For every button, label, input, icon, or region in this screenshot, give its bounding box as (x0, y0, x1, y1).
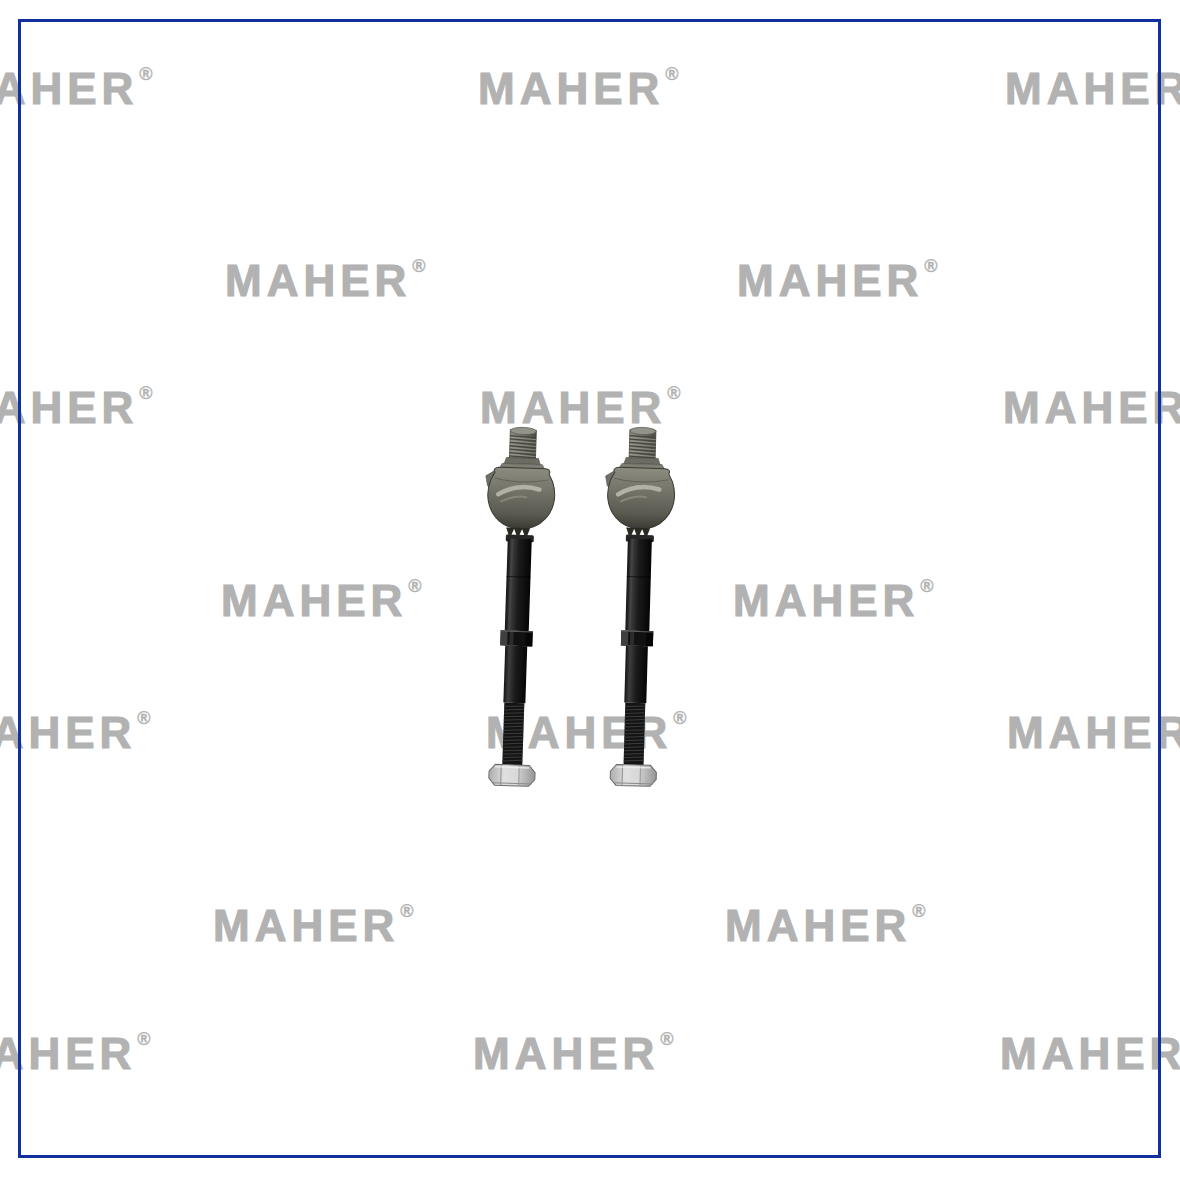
product-image-canvas: MAHER®MAHER®MAHER®MAHER®MAHER®MAHER®MAHE… (0, 0, 1180, 1180)
tie-rod-right (597, 426, 676, 786)
tie-rod-left (476, 426, 557, 787)
product-photo (0, 0, 1180, 1180)
